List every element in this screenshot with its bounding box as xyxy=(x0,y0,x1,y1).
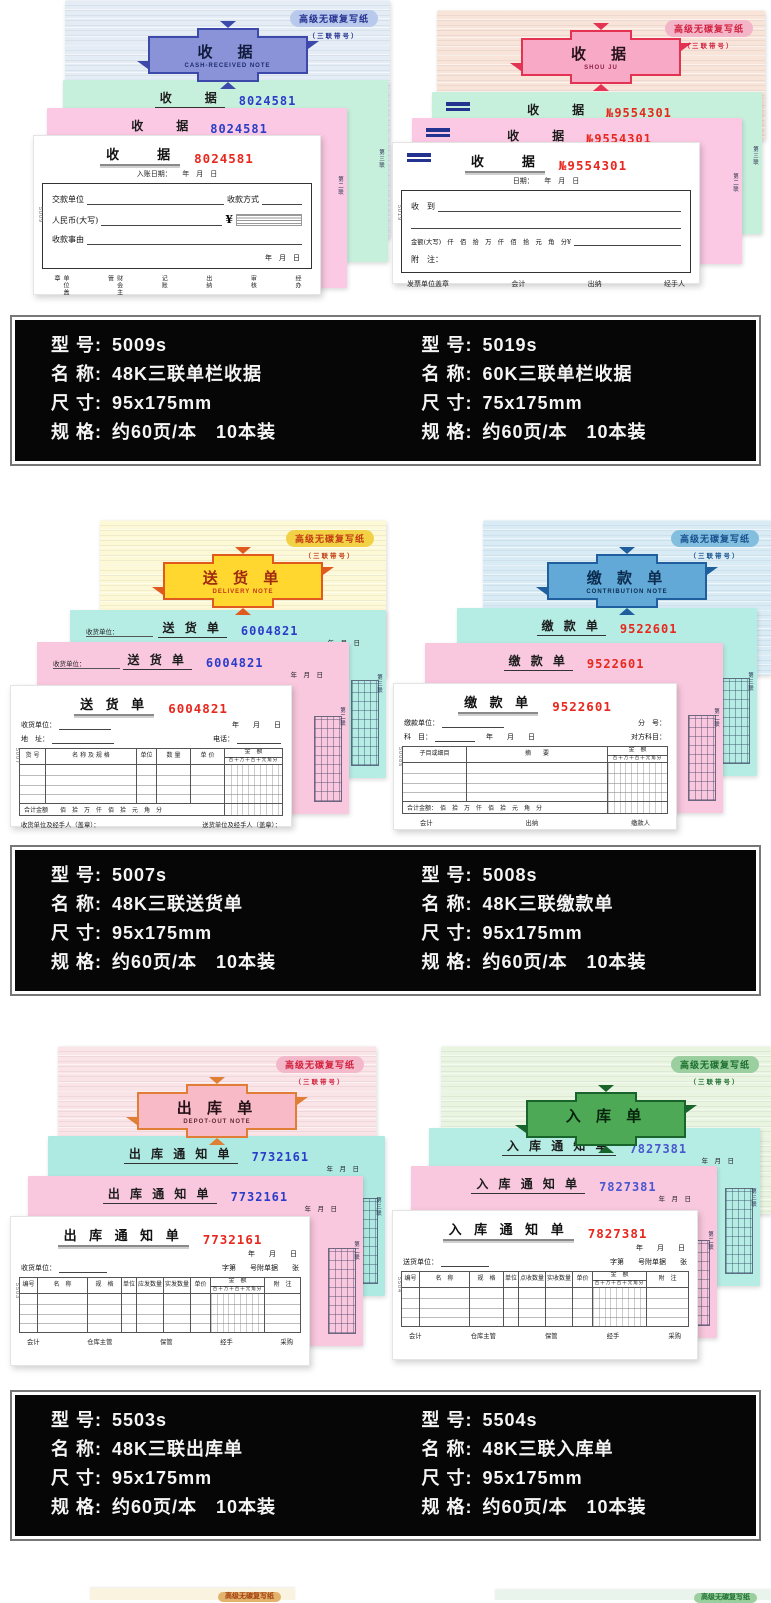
serial-number: 9522601 xyxy=(552,699,612,714)
title-banner: 入 库 单 xyxy=(526,1100,686,1138)
spec-col-left: 型 号:5503s 名 称:48K三联出库单 尺 寸:95x175mm 规 格:… xyxy=(15,1395,386,1536)
signature-row: 会计 出纳 缴款人 xyxy=(394,815,676,830)
white-form-sheet: 入 库 通 知 单 7827381 年 月 日 送货单位： 字第 号附单据 张 … xyxy=(392,1210,698,1360)
side-code: 5009 xyxy=(37,207,43,223)
product-image-receipt-48k: 高级无碳复写纸 （三联带号） 收 据 CASH-RECEIVED NOTE 收 … xyxy=(25,0,390,305)
spec-box-3: 型 号:5503s 名 称:48K三联出库单 尺 寸:95x175mm 规 格:… xyxy=(10,1390,761,1541)
form-title: 收 据 xyxy=(465,151,545,173)
date-line: 年 月 日 xyxy=(327,1163,360,1173)
white-form-sheet: 收 据 8024581 入账日期： 年 月 日 交款单位 收款方式 人民币(大写… xyxy=(33,135,321,295)
spec-value: 48K三联送货单 xyxy=(112,890,243,919)
spec-label: 尺 寸: xyxy=(422,1464,473,1493)
spec-label: 名 称: xyxy=(51,360,102,389)
serial-number: №9554301 xyxy=(559,158,627,173)
serial-number: 7827381 xyxy=(599,1180,657,1194)
signature-label: 送货单位及经手人（盖章）： xyxy=(202,820,281,829)
spec-label: 型 号: xyxy=(51,1406,102,1435)
banner-tab-top xyxy=(596,554,658,564)
col-header: 金 额百十万千百十元角分 xyxy=(593,1272,647,1288)
signature-label: 会计 xyxy=(27,1337,40,1346)
banner-subtitle: CONTRIBUTION NOTE xyxy=(549,589,705,596)
signature-row: 单位盖章 财会主管 记账 出纳 审核 经办 xyxy=(34,271,320,301)
badge-pill: 高级无碳复写纸 xyxy=(671,530,759,547)
col-header: 名 称 xyxy=(420,1272,470,1288)
signature-label: 保管 xyxy=(545,1331,558,1340)
arrow-icon xyxy=(619,547,635,554)
signature-label: 收货单位及经手人（盖章）： xyxy=(21,820,100,829)
field-label: 收货单位： xyxy=(86,626,153,637)
signature-label: 会计 xyxy=(511,279,525,289)
banner-tab-bottom xyxy=(575,1136,637,1146)
spec-value: 95x175mm xyxy=(483,919,583,948)
col-header: 单价 xyxy=(191,1278,211,1294)
date-line: 年 月 日 xyxy=(486,732,535,742)
banner-title: 入 库 单 xyxy=(528,1105,684,1126)
serial-number: 9522601 xyxy=(620,622,678,636)
quality-badge: 高级无碳复写纸 （三联带号） xyxy=(276,1055,364,1086)
spec-value: 约60页/本 10本装 xyxy=(483,948,647,977)
side-code: 5503 xyxy=(14,1283,20,1299)
field-label: 交款单位 xyxy=(52,194,84,205)
copy-label: 第三联 xyxy=(374,1197,382,1217)
serial-number: 7827381 xyxy=(588,1226,648,1241)
spec-value: 5009s xyxy=(112,331,167,360)
col-header: 规 格 xyxy=(88,1278,122,1294)
banner-tab-bottom xyxy=(212,598,274,608)
field-label: 收货单位： xyxy=(21,1263,56,1273)
side-code: 5008s xyxy=(397,747,403,767)
quality-badge: 高级无碳复写纸 xyxy=(694,1593,757,1603)
product-image-depot-out-note: 高级无碳复写纸 （三联带号） 出 库 单 DEPOT-OUT NOTE 出 库 … xyxy=(0,1010,386,1358)
depot-in-table: 编号 名 称 规 格 单位 点收数量 实收数量 单价 金 额百十万千百十元角分 … xyxy=(401,1271,689,1327)
banner-title: 缴 款 单 xyxy=(549,567,705,588)
spec-label: 规 格: xyxy=(422,418,473,447)
spec-value: 48K三联缴款单 xyxy=(483,890,614,919)
copy-label: 第二联 xyxy=(706,1231,714,1251)
form-title: 送 货 单 xyxy=(74,694,154,716)
serial-number: 8024581 xyxy=(210,122,268,136)
serial-number: 6004821 xyxy=(206,656,264,670)
banner-title: 收 据 xyxy=(523,43,679,64)
spec-label: 尺 寸: xyxy=(51,919,102,948)
spec-box-2: 型 号:5007s 名 称:48K三联送货单 尺 寸:95x175mm 规 格:… xyxy=(10,845,761,996)
arrow-icon xyxy=(510,63,521,71)
field-label: 对方科目： xyxy=(631,732,666,742)
arrow-icon xyxy=(598,1146,614,1153)
signature-row: 收货单位及经手人（盖章）： 送货单位及经手人（盖章）： xyxy=(11,817,291,832)
field-label: 字第 号附单据 张 xyxy=(610,1257,687,1267)
field-label: 收款事由 xyxy=(52,234,84,245)
banner-subtitle: SHOU JU xyxy=(523,65,679,72)
col-header: 单价 xyxy=(573,1272,593,1288)
signature-label: 出纳 xyxy=(588,279,602,289)
serial-number: 7732161 xyxy=(252,1150,310,1164)
field-label: 电话： xyxy=(213,734,234,744)
arrow-icon xyxy=(686,1105,697,1113)
col-header: 实发数量 xyxy=(164,1278,191,1294)
field-label: 地 址： xyxy=(21,734,49,744)
badge-subtext: （三联带号） xyxy=(671,550,759,560)
copy-label: 第二联 xyxy=(336,176,344,196)
arrow-icon xyxy=(593,84,609,91)
arrow-icon xyxy=(220,21,236,28)
serial-number: 6004821 xyxy=(241,624,299,638)
sheet-title: 入 库 通 知 单 xyxy=(471,1175,585,1194)
field-label: 收款方式 xyxy=(227,194,259,205)
amount-total-row: 合计金额： 佰 拾 万 仟 佰 拾 元 角 分 xyxy=(403,802,608,814)
sheet-title: 送 货 单 xyxy=(158,619,227,638)
title-banner: 出 库 单 DEPOT-OUT NOTE xyxy=(137,1092,297,1130)
spec-label: 尺 寸: xyxy=(422,389,473,418)
signature-row: 会计 仓库主管 保管 经手 采购 xyxy=(11,1334,309,1349)
signature-label: 采购 xyxy=(668,1331,681,1340)
serial-number: 9522601 xyxy=(587,657,645,671)
spec-label: 名 称: xyxy=(422,360,473,389)
form-title: 出 库 通 知 单 xyxy=(58,1225,189,1247)
signature-row: 发票单位盖章 会计 出纳 经手人 xyxy=(393,275,699,293)
form-title: 入 库 通 知 单 xyxy=(443,1219,574,1241)
mini-table-tab xyxy=(688,715,716,801)
arrow-icon xyxy=(308,41,319,49)
date-line: 年 月 日 xyxy=(248,1249,297,1259)
arrow-icon xyxy=(126,1117,137,1125)
delivery-table: 货 号 名 称 及 规 格 单位 数 量 单 价 金 额百十万千百十元角分 合计… xyxy=(19,748,283,816)
spec-col-right: 型 号:5019s 名 称:60K三联单栏收据 尺 寸:75x175mm 规 格… xyxy=(386,320,757,461)
field-label: 附 注： xyxy=(411,254,443,265)
badge-pill: 高级无碳复写纸 xyxy=(671,1056,759,1073)
col-header: 编号 xyxy=(402,1272,420,1288)
signature-label: 记账 xyxy=(159,275,168,301)
depot-out-table: 编号 名 称 规 格 单位 应发数量 实发数量 单价 金 额百十万千百十元角分 … xyxy=(19,1277,301,1333)
spec-label: 型 号: xyxy=(51,331,102,360)
spec-label: 型 号: xyxy=(51,861,102,890)
quality-badge: 高级无碳复写纸 （三联带号） xyxy=(671,529,759,560)
signature-label: 经手人 xyxy=(664,279,685,289)
quality-badge: 高级无碳复写纸 xyxy=(218,1592,281,1602)
form-title: 缴 款 单 xyxy=(458,692,538,714)
banner-tab-bottom xyxy=(570,74,632,84)
badge-subtext: （三联带号） xyxy=(290,30,378,40)
product-image-depot-in-note: 高级无碳复写纸 （三联带号） 入 库 单 入 库 通 知 单 7827381 年… xyxy=(385,1010,771,1358)
field-label: 缴款单位： xyxy=(404,718,439,728)
arrow-icon xyxy=(235,547,251,554)
copy-label: 第二联 xyxy=(712,708,720,728)
banner-tab-top xyxy=(570,30,632,40)
field-label: 送货单位： xyxy=(403,1257,438,1267)
spec-col-left: 型 号:5009s 名 称:48K三联单栏收据 尺 寸:95x175mm 规 格… xyxy=(15,320,386,461)
copy-label: 第三联 xyxy=(746,672,754,692)
signature-label: 经手 xyxy=(607,1331,620,1340)
serial-number: 7732161 xyxy=(203,1232,263,1247)
col-header: 单位 xyxy=(137,749,157,765)
field-label: 金额(大写) 仟 佰 拾 万 仟 佰 拾 元 角 分¥ xyxy=(411,237,571,246)
banner-subtitle: DEPOT-OUT NOTE xyxy=(139,1119,295,1126)
spec-label: 尺 寸: xyxy=(51,1464,102,1493)
sheet-title: 收 据 xyxy=(155,89,225,108)
date-line: 年 月 日 xyxy=(305,1203,338,1213)
col-header: 货 号 xyxy=(20,749,46,765)
contribution-table: 子目或细目 摘 要 金 额百十万千百十元角分 合计金额： 佰 拾 万 仟 佰 拾… xyxy=(402,746,668,814)
white-form-sheet: 收 据 №9554301 日期： 年 月 日 收 到 金额(大写) 仟 佰 拾 … xyxy=(392,142,700,284)
serial-number: 7732161 xyxy=(231,1190,289,1204)
col-header: 附 注 xyxy=(265,1278,301,1294)
arrow-icon xyxy=(152,587,163,595)
side-code: 5007 xyxy=(14,748,20,764)
title-banner: 缴 款 单 CONTRIBUTION NOTE xyxy=(547,562,707,600)
badge-pill: 高级无碳复写纸 xyxy=(276,1056,364,1073)
spec-label: 规 格: xyxy=(51,418,102,447)
white-form-sheet: 缴 款 单 9522601 缴款单位： 分 号： 科 目： 年 月 日 对方科目… xyxy=(393,683,677,830)
amount-total-row: 合计金额 佰 拾 万 仟 佰 拾 元 角 分 xyxy=(20,804,225,816)
col-header: 点收数量 xyxy=(519,1272,546,1288)
badge-pill: 高级无碳复写纸 xyxy=(286,530,374,547)
spec-value: 5008s xyxy=(483,861,538,890)
spec-value: 约60页/本 10本装 xyxy=(483,1493,647,1522)
copy-label: 第二联 xyxy=(731,173,739,193)
form-title: 收 据 xyxy=(100,144,180,166)
signature-label: 经办 xyxy=(293,275,302,301)
copy-label: 第三联 xyxy=(751,146,759,166)
badge-subtext: （三联带号） xyxy=(665,40,753,50)
product-image-delivery-note: 高级无碳复写纸 （三联带号） 送 货 单 DELIVERY NOTE 收货单位：… xyxy=(0,500,386,830)
spec-value: 60K三联单栏收据 xyxy=(483,360,633,389)
spec-label: 尺 寸: xyxy=(422,919,473,948)
signature-label: 仓库主管 xyxy=(471,1331,496,1340)
sheet-title: 送 货 单 xyxy=(123,651,192,670)
spec-value: 5007s xyxy=(112,861,167,890)
side-code: 5504 xyxy=(396,1277,402,1293)
col-header: 实收数量 xyxy=(546,1272,573,1288)
quality-badge: 高级无碳复写纸 （三联带号） xyxy=(290,9,378,40)
title-banner: 收 据 SHOU JU xyxy=(521,38,681,76)
spec-label: 名 称: xyxy=(422,1435,473,1464)
product-image-contribution-note: 高级无碳复写纸 （三联带号） 缴 款 单 CONTRIBUTION NOTE 缴… xyxy=(385,500,771,830)
arrow-icon xyxy=(619,608,635,615)
col-header: 名 称 xyxy=(38,1278,88,1294)
col-header: 附 注 xyxy=(647,1272,689,1288)
signature-label: 仓库主管 xyxy=(87,1337,112,1346)
signature-label: 审核 xyxy=(248,275,257,301)
col-header: 子目或细目 xyxy=(403,747,467,763)
spec-label: 规 格: xyxy=(51,1493,102,1522)
col-header: 数 量 xyxy=(157,749,191,765)
col-header: 编号 xyxy=(20,1278,38,1294)
signature-label: 缴款人 xyxy=(631,818,650,827)
arrow-icon xyxy=(297,1097,308,1105)
next-product-preview-right: 高级无碳复写纸 xyxy=(495,1590,771,1600)
field-label: 字第 号附单据 张 xyxy=(222,1263,299,1273)
spec-label: 规 格: xyxy=(51,948,102,977)
arrow-icon xyxy=(598,1085,614,1092)
col-header: 单位 xyxy=(504,1272,519,1288)
arrow-icon xyxy=(220,82,236,89)
mini-table-tab xyxy=(328,1248,356,1334)
signature-label: 出纳 xyxy=(204,275,213,301)
spec-label: 型 号: xyxy=(422,1406,473,1435)
field-label: 收货单位： xyxy=(21,720,56,730)
signature-row: 会计 仓库主管 保管 经手 采购 xyxy=(393,1328,697,1343)
sheet-title: 出 库 通 知 单 xyxy=(124,1145,238,1164)
serial-number: 7827381 xyxy=(630,1142,688,1156)
signature-label: 财会主管 xyxy=(106,275,124,301)
badge-pill: 高级无碳复写纸 xyxy=(665,20,753,37)
banner-tab-bottom xyxy=(197,72,259,82)
spec-label: 名 称: xyxy=(51,1435,102,1464)
signature-label: 会计 xyxy=(409,1331,422,1340)
copy-label: 第三联 xyxy=(375,674,383,694)
date-line: 年 月 日 xyxy=(232,720,281,730)
spec-value: 约60页/本 10本装 xyxy=(112,1493,276,1522)
arrow-icon xyxy=(593,23,609,30)
serial-number: 8024581 xyxy=(239,94,297,108)
badge-pill: 高级无碳复写纸 xyxy=(290,10,378,27)
copy-label: 第二联 xyxy=(352,1241,360,1261)
spec-col-left: 型 号:5007s 名 称:48K三联送货单 尺 寸:95x175mm 规 格:… xyxy=(15,850,386,991)
arrow-icon xyxy=(515,1125,526,1133)
date-line: 年 月 日 xyxy=(291,669,324,679)
form-fields-box: 交款单位 收款方式 人民币(大写) ¥ 收款事由 年 月 日 xyxy=(42,183,312,269)
date-line: 入账日期： 年 月 日 xyxy=(34,169,320,179)
arrow-icon xyxy=(536,587,547,595)
col-header: 应发数量 xyxy=(137,1278,164,1294)
spec-value: 5503s xyxy=(112,1406,167,1435)
spec-label: 尺 寸: xyxy=(51,389,102,418)
date-line: 年 月 日 xyxy=(702,1155,735,1165)
quality-badge: 高级无碳复写纸 （三联带号） xyxy=(665,19,753,50)
spec-value: 约60页/本 10本装 xyxy=(112,418,276,447)
signature-label: 会计 xyxy=(420,818,433,827)
spec-value: 5019s xyxy=(483,331,538,360)
spec-value: 48K三联单栏收据 xyxy=(112,360,262,389)
quality-badge: 高级无碳复写纸 （三联带号） xyxy=(286,529,374,560)
signature-label: 经手 xyxy=(220,1337,233,1346)
col-header: 摘 要 xyxy=(467,747,608,763)
quality-badge: 高级无碳复写纸 （三联带号） xyxy=(671,1055,759,1086)
title-banner: 送 货 单 DELIVERY NOTE xyxy=(163,562,323,600)
spec-value: 95x175mm xyxy=(112,389,212,418)
yen-symbol: ¥ xyxy=(225,213,233,226)
badge-subtext: （三联带号） xyxy=(276,1076,364,1086)
field-label: 收 到 xyxy=(411,201,435,212)
col-header: 规 格 xyxy=(470,1272,504,1288)
date-line: 年 月 日 xyxy=(659,1193,692,1203)
spec-value: 5504s xyxy=(483,1406,538,1435)
signature-label: 出纳 xyxy=(526,818,539,827)
spec-label: 规 格: xyxy=(422,1493,473,1522)
mini-table-tab xyxy=(314,716,342,802)
date-line: 日期： 年 月 日 xyxy=(393,176,699,186)
signature-label: 采购 xyxy=(280,1337,293,1346)
signature-label: 发票单位盖章 xyxy=(407,279,449,289)
banner-subtitle xyxy=(528,1127,684,1134)
next-product-preview-left: 高级无碳复写纸 xyxy=(90,1588,295,1600)
white-form-sheet: 出 库 通 知 单 7732161 年 月 日 收货单位： 字第 号附单据 张 … xyxy=(10,1216,310,1366)
spec-value: 约60页/本 10本装 xyxy=(112,948,276,977)
spec-value: 约60页/本 10本装 xyxy=(483,418,647,447)
serial-number: 6004821 xyxy=(168,701,228,716)
arrow-icon xyxy=(235,608,251,615)
date-line: 年 月 日 xyxy=(636,1243,685,1253)
signature-label: 保管 xyxy=(160,1337,173,1346)
white-form-sheet: 送 货 单 6004821 收货单位： 年 月 日 地 址： 电话： 货 号 名… xyxy=(10,685,292,827)
spec-label: 型 号: xyxy=(422,861,473,890)
arrow-icon xyxy=(209,1138,225,1145)
spec-label: 名 称: xyxy=(422,890,473,919)
banner-tab-top xyxy=(575,1092,637,1102)
spec-value: 95x175mm xyxy=(483,1464,583,1493)
spec-col-right: 型 号:5504s 名 称:48K三联入库单 尺 寸:95x175mm 规 格:… xyxy=(386,1395,757,1536)
banner-tab-bottom xyxy=(596,598,658,608)
banner-title: 出 库 单 xyxy=(139,1097,295,1118)
sheet-title: 缴 款 单 xyxy=(504,652,573,671)
arrow-icon xyxy=(323,567,334,575)
copy-label: 第三联 xyxy=(377,149,385,169)
banner-subtitle: DELIVERY NOTE xyxy=(165,589,321,596)
col-header: 金 额百十万千百十元角分 xyxy=(608,747,668,763)
arrow-icon xyxy=(209,1077,225,1084)
col-header: 单位 xyxy=(122,1278,137,1294)
spec-box-1: 型 号:5009s 名 称:48K三联单栏收据 尺 寸:95x175mm 规 格… xyxy=(10,315,761,466)
field-label: 人民币(大写) xyxy=(52,215,98,226)
spec-value: 48K三联入库单 xyxy=(483,1435,614,1464)
banner-tab-top xyxy=(212,554,274,564)
banner-tab-top xyxy=(186,1084,248,1094)
badge-subtext: （三联带号） xyxy=(286,550,374,560)
banner-subtitle: CASH-RECEIVED NOTE xyxy=(150,63,306,70)
spec-col-right: 型 号:5008s 名 称:48K三联缴款单 尺 寸:95x175mm 规 格:… xyxy=(386,850,757,991)
badge-subtext: （三联带号） xyxy=(671,1076,759,1086)
amount-lines xyxy=(236,214,302,226)
banner-title: 送 货 单 xyxy=(165,567,321,588)
field-label: 分 号： xyxy=(638,718,666,728)
arrow-icon xyxy=(707,567,718,575)
serial-number: 8024581 xyxy=(194,151,254,166)
copy-label: 第三联 xyxy=(749,1188,757,1208)
sheet-title: 缴 款 单 xyxy=(537,617,606,636)
field-label: 收货单位： xyxy=(53,658,120,669)
product-image-receipt-60k: 高级无碳复写纸 （三联带号） 收 据 SHOU JU 收 据 №9554301 … xyxy=(390,0,771,305)
spec-value: 75x175mm xyxy=(483,389,583,418)
col-header: 金 额百十万千百十元角分 xyxy=(225,749,283,765)
col-header: 金 额百十万千百十元角分 xyxy=(211,1278,265,1294)
spec-value: 48K三联出库单 xyxy=(112,1435,243,1464)
banner-tab-bottom xyxy=(186,1128,248,1138)
col-header: 单 价 xyxy=(191,749,225,765)
spec-value: 95x175mm xyxy=(112,919,212,948)
sheet-title: 出 库 通 知 单 xyxy=(103,1185,217,1204)
banner-tab-top xyxy=(197,28,259,38)
spec-label: 规 格: xyxy=(422,948,473,977)
sheet-title: 收 据 xyxy=(126,117,196,136)
arrow-icon xyxy=(137,61,148,69)
col-header: 名 称 及 规 格 xyxy=(46,749,137,765)
spec-value: 95x175mm xyxy=(112,1464,212,1493)
title-banner: 收 据 CASH-RECEIVED NOTE xyxy=(148,36,308,74)
spec-label: 型 号: xyxy=(422,331,473,360)
field-label: 科 目： xyxy=(404,732,432,742)
spec-label: 名 称: xyxy=(51,890,102,919)
date-line: 年 月 日 xyxy=(265,253,300,263)
copy-label: 第二联 xyxy=(338,707,346,727)
signature-label: 单位盖章 xyxy=(52,275,70,301)
banner-title: 收 据 xyxy=(150,41,306,62)
form-fields-box: 收 到 金额(大写) 仟 佰 拾 万 仟 佰 拾 元 角 分¥ 附 注： xyxy=(401,190,691,273)
side-code: 5019 xyxy=(396,205,402,221)
